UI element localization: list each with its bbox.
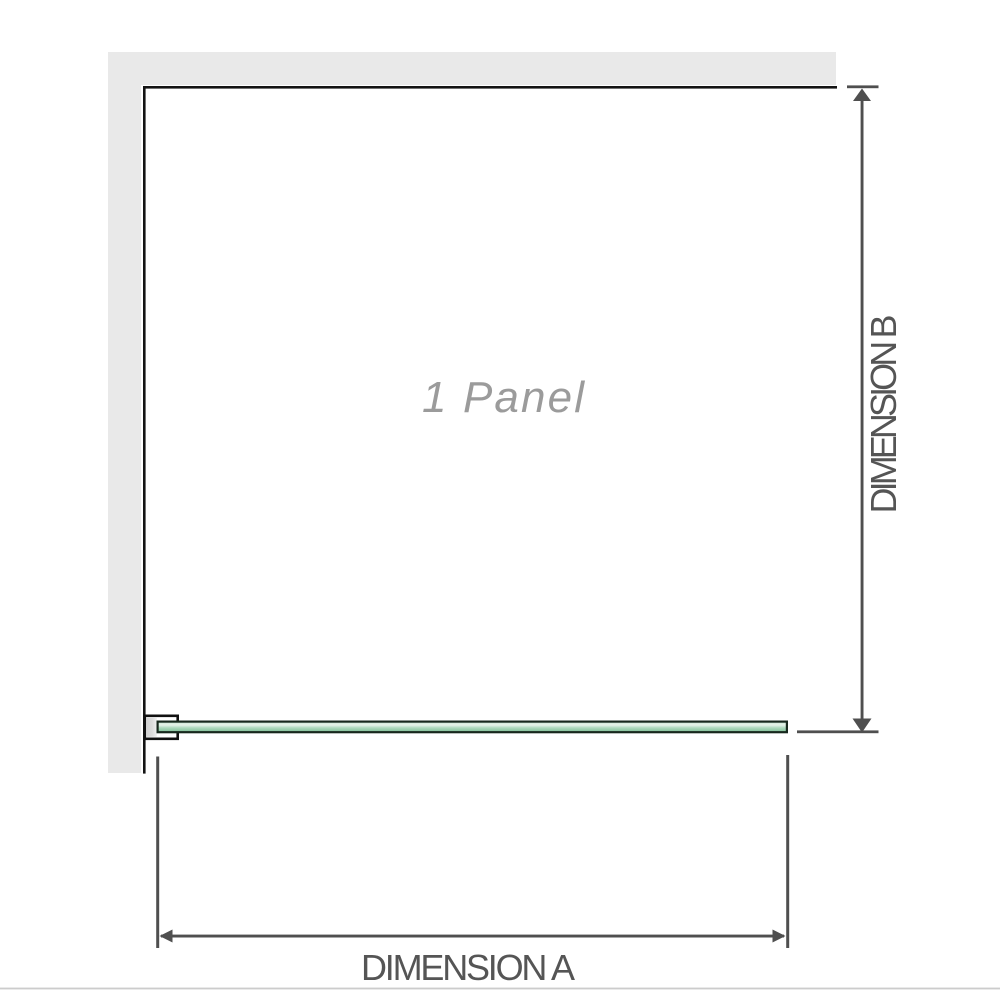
svg-text:DIMENSION B: DIMENSION B [863, 315, 904, 514]
svg-text:1 Panel: 1 Panel [422, 373, 585, 422]
svg-text:DIMENSION A: DIMENSION A [361, 947, 575, 988]
